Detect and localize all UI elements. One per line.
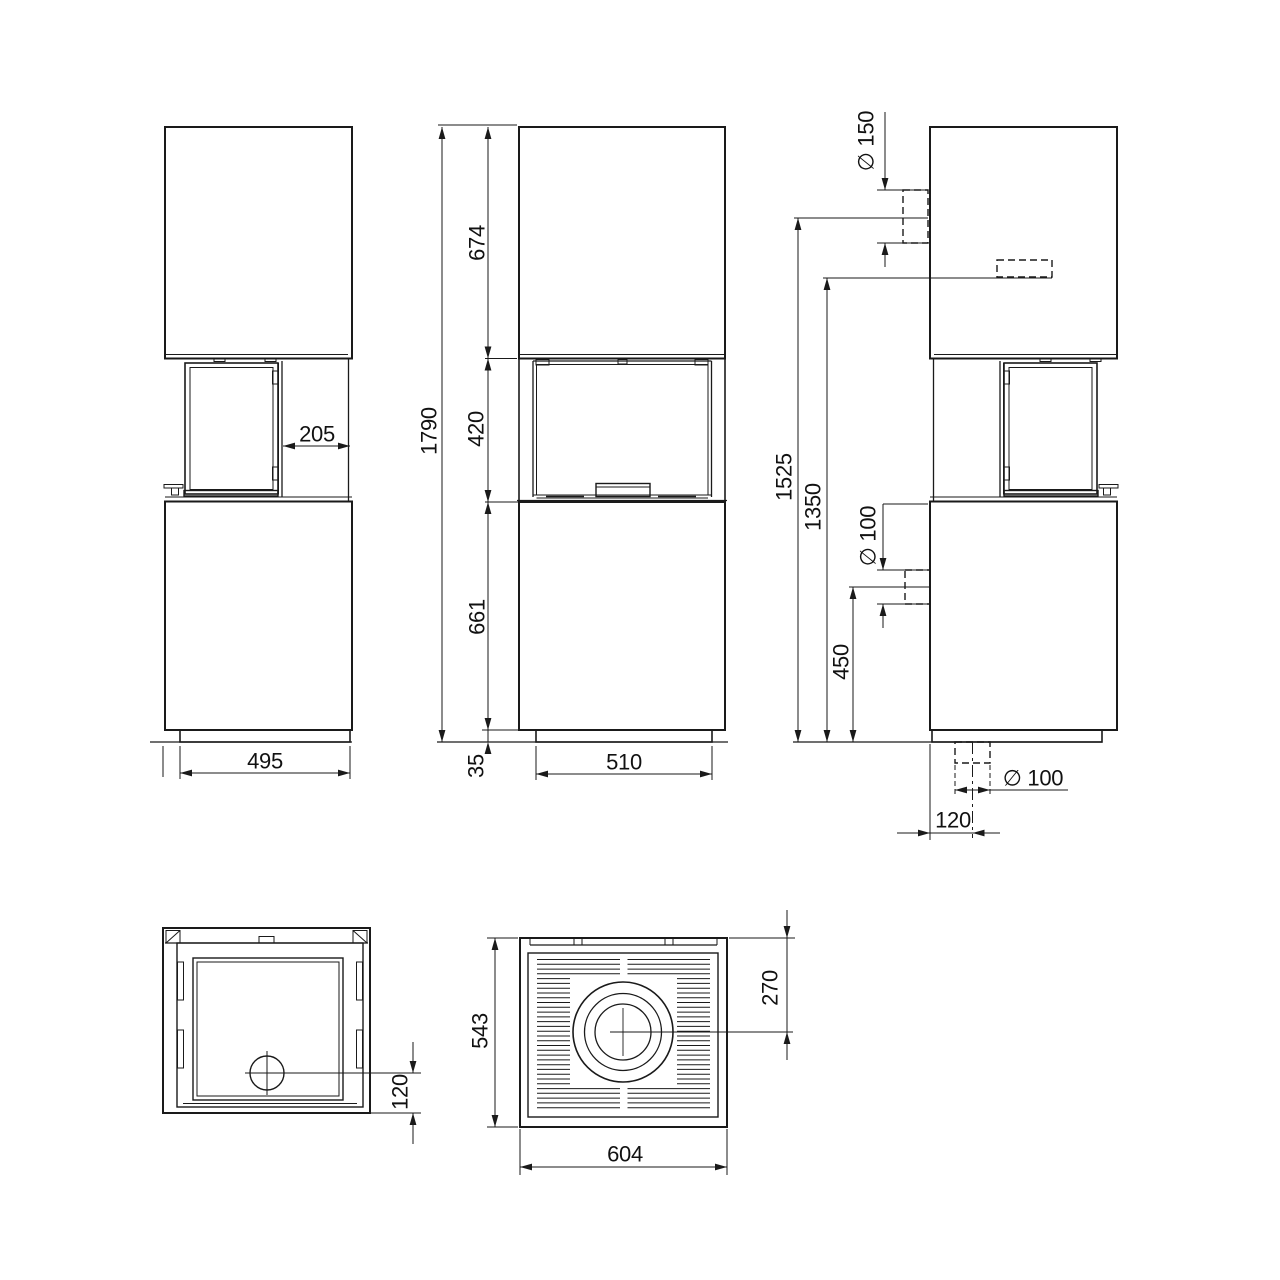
side-left-dimensions: 205 495 (180, 422, 350, 780)
top-body (520, 938, 793, 1127)
dim-top-width: 604 (607, 1142, 643, 1167)
dim-rear-outlet-height: 1350 (801, 483, 826, 531)
dim-base-width: 510 (606, 750, 642, 775)
dim-base-height: 35 (464, 754, 489, 778)
side-left-body (150, 127, 352, 777)
flue-outlet-rear-dashed (997, 260, 1052, 277)
view-front: 1790 674 420 661 35 510 (417, 125, 729, 780)
dim-base-depth: 495 (247, 749, 283, 774)
view-door-detail: 120 (163, 928, 421, 1144)
dim-damper-offset: 120 (388, 1074, 413, 1110)
dim-floor-pipe-diameter: ∅ 100 (1003, 766, 1064, 791)
top-dimensions: 543 270 604 (468, 910, 796, 1175)
dim-air-inlet-height: 450 (829, 644, 854, 680)
flue-outlet-top-dashed (903, 190, 928, 243)
front-window (533, 360, 712, 499)
dim-top-depth: 543 (468, 1013, 493, 1049)
dim-total-height: 1790 (417, 407, 442, 455)
dim-flue-height: 1525 (772, 453, 797, 501)
view-top: 543 270 604 (468, 910, 796, 1175)
side-right-connections (903, 190, 1052, 838)
dim-top-module: 674 (465, 225, 490, 261)
dim-air-inlet-diameter: ∅ 100 (856, 506, 881, 567)
side-right-door-handle (1099, 485, 1118, 496)
side-left-door-handle (164, 485, 183, 496)
dim-flue-center-offset: 270 (758, 970, 783, 1006)
view-side-left: 205 495 (150, 127, 352, 779)
view-side-right: ∅ 150 1525 1350 ∅ 100 (772, 111, 1119, 840)
dim-firebox: 420 (464, 411, 489, 447)
stove-technical-drawing: 205 495 (0, 0, 1280, 1280)
dim-recess-depth: 205 (299, 422, 335, 447)
door-dimensions: 120 (370, 1042, 421, 1144)
dim-flue-diameter: ∅ 150 (854, 111, 879, 172)
front-dimensions: 1790 674 420 661 35 510 (417, 125, 713, 780)
dim-bottom-module: 661 (465, 599, 490, 635)
dim-floor-pipe-offset: 120 (935, 808, 971, 833)
drawing-page: 205 495 (0, 0, 1280, 1280)
